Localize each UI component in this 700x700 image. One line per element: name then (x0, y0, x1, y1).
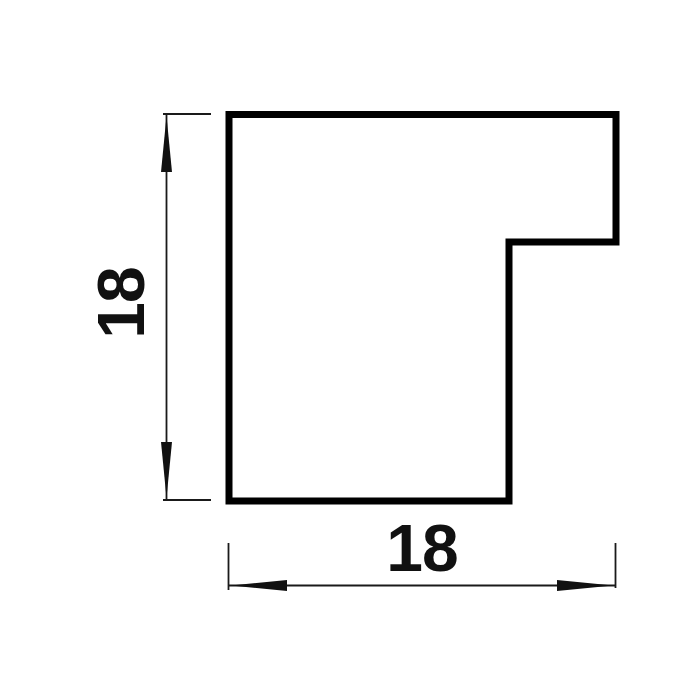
horizontal-dimension-label: 18 (386, 511, 457, 585)
technical-drawing-canvas: 18 18 (0, 0, 700, 700)
vertical-dimension-label: 18 (84, 267, 158, 338)
horizontal-dimension: 18 (229, 511, 616, 591)
arrow-right-icon (557, 580, 613, 591)
arrow-up-icon (161, 116, 172, 172)
arrow-down-icon (161, 442, 172, 498)
arrow-left-icon (231, 580, 287, 591)
moulding-profile-drawing: 18 18 (0, 0, 700, 700)
profile-outline (229, 115, 616, 502)
vertical-dimension: 18 (84, 114, 211, 500)
